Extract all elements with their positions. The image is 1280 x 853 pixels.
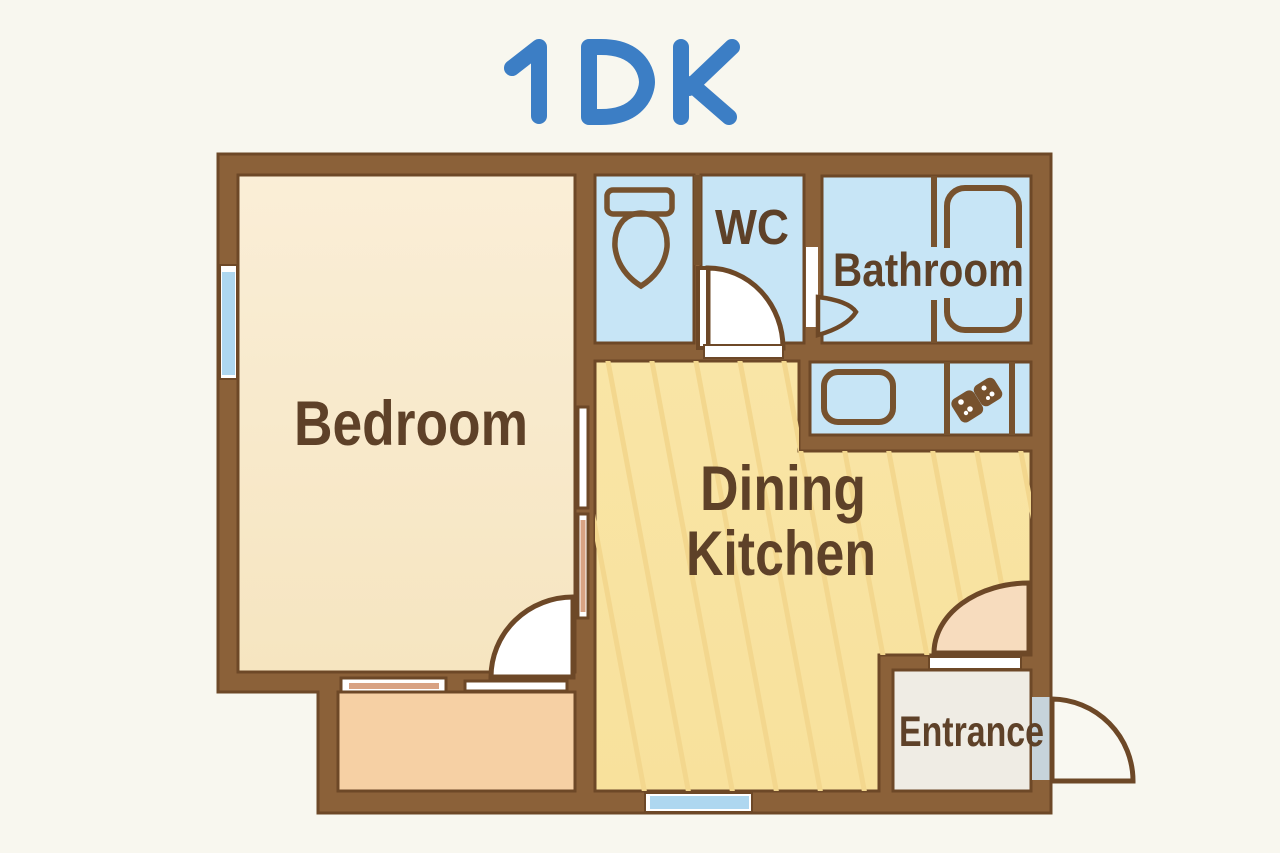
svg-text:Bedroom: Bedroom — [294, 389, 528, 459]
svg-text:Entrance: Entrance — [899, 708, 1044, 756]
svg-text:Kitchen: Kitchen — [686, 519, 876, 589]
svg-text:WC: WC — [715, 201, 789, 255]
svg-text:Dining: Dining — [700, 454, 866, 524]
svg-text:Bathroom: Bathroom — [833, 243, 1024, 296]
